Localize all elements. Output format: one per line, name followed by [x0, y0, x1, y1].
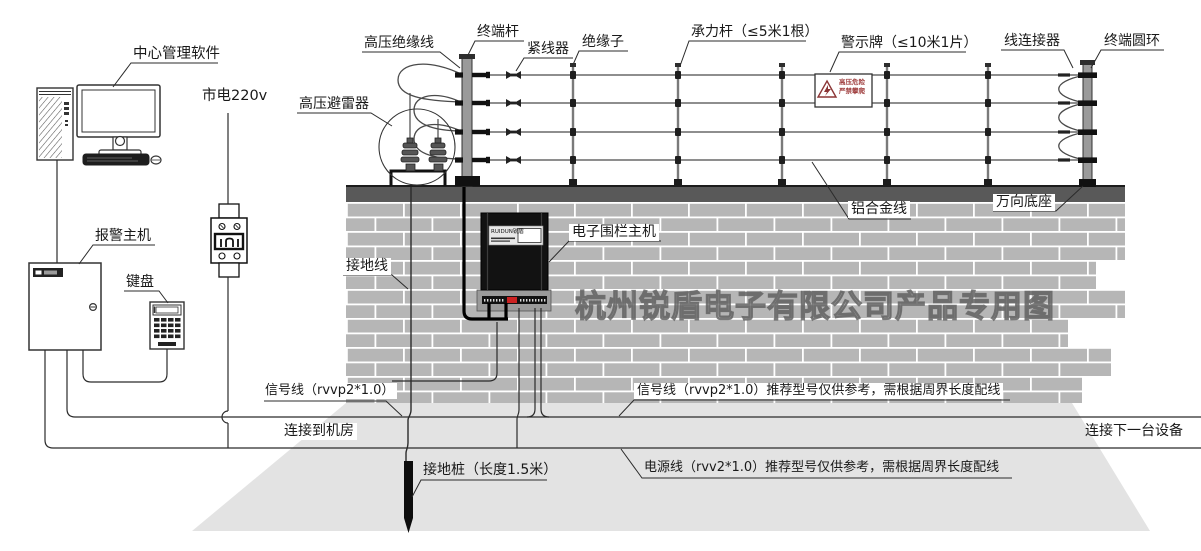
- label-to-machine-room: 连接到机房: [281, 423, 357, 440]
- label-ground-stake: 接地桩（长度1.5米）: [423, 462, 557, 479]
- label-fence-host: 电子围栏主机: [569, 224, 659, 241]
- lightning-arrester: [379, 109, 455, 186]
- label-signal-wire-left: 信号线（rvvp2*1.0）: [262, 383, 397, 399]
- label-terminal-pole: 终端杆: [477, 24, 519, 41]
- label-power-wire: 电源线（rvv2*1.0）推荐型号仅供参考，需根据周界长度配线: [644, 460, 999, 476]
- keypad-device: [150, 302, 184, 349]
- fence-energizer: [477, 213, 551, 311]
- label-load-pole: 承力杆（≤5米1根）: [691, 24, 819, 41]
- label-aluminum-wire: 铝合金线: [848, 201, 910, 218]
- ground-stake: [404, 461, 413, 533]
- label-to-next-device: 连接下一台设备: [1085, 423, 1183, 440]
- label-wire-connector: 线连接器: [1004, 33, 1060, 50]
- label-warning-sign: 警示牌（≤10米1片）: [841, 35, 977, 52]
- label-tensioner: 紧线器: [527, 41, 569, 58]
- warning-sign-line2: 严禁攀爬: [839, 88, 865, 96]
- pc-keyboard: [83, 154, 149, 165]
- circuit-breaker: [211, 204, 247, 277]
- label-alarm-host: 报警主机: [95, 228, 151, 245]
- label-center-software: 中心管理软件: [133, 46, 220, 63]
- fence-poles: [455, 54, 1097, 187]
- label-universal-base: 万向底座: [993, 194, 1055, 211]
- terminal-pole-right: [1058, 60, 1097, 187]
- terminal-fuse: [507, 297, 517, 303]
- label-hv-insulated-wire: 高压绝缘线: [364, 35, 434, 52]
- label-signal-wire-right: 信号线（rvvp2*1.0）推荐型号仅供参考，需根据周界长度配线: [634, 383, 1003, 399]
- watermark-text: 杭州锐盾电子有限公司产品专用图: [575, 281, 1055, 326]
- label-keypad: 键盘: [126, 274, 154, 291]
- energizer-logo-text: RUIDUN锐盾: [491, 229, 524, 235]
- fence-assembly: [398, 64, 1085, 160]
- installation-diagram: 杭州锐盾电子有限公司产品专用图 中心管理软件 市电220v 高压避雷器 报警主机…: [0, 0, 1201, 551]
- warning-sign-line1: 高压危险: [839, 79, 865, 87]
- diagram-canvas: [0, 0, 1201, 551]
- alarm-host-box: [29, 263, 101, 350]
- label-terminal-ring: 终端圆环: [1104, 33, 1160, 50]
- label-insulator: 绝缘子: [582, 34, 624, 51]
- computer-workstation: [37, 85, 161, 165]
- label-arrester: 高压避雷器: [299, 96, 369, 113]
- label-mains-power: 市电220v: [202, 88, 267, 105]
- label-ground-wire: 接地线: [343, 258, 391, 275]
- terminal-pole-left: [455, 54, 490, 186]
